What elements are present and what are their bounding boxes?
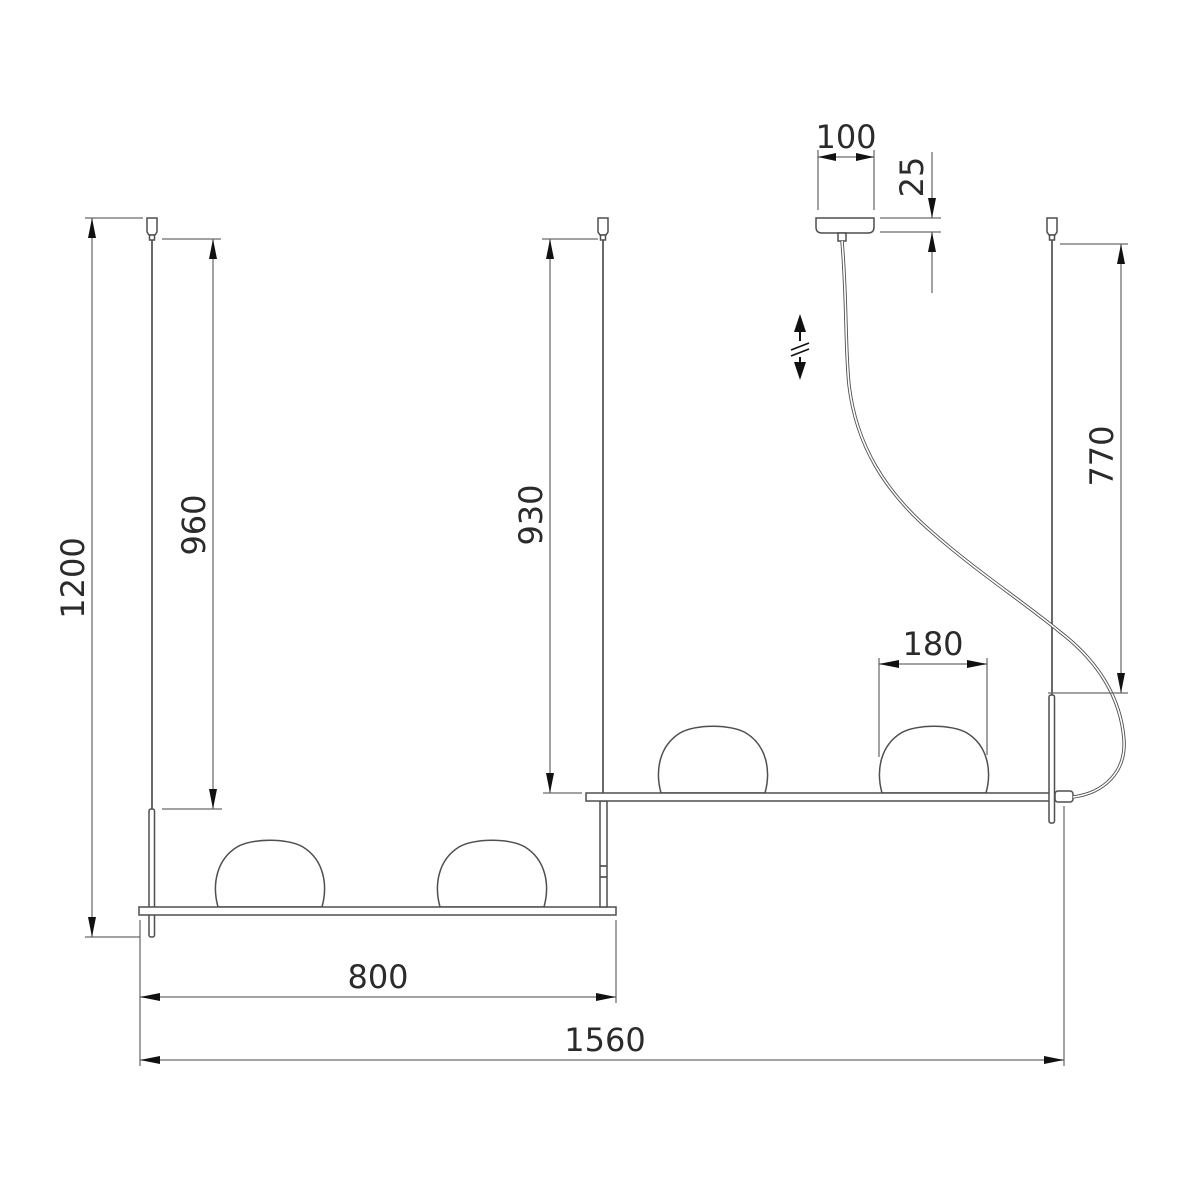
dim-label-800: 800 — [347, 958, 408, 996]
ceiling-canopy — [816, 218, 874, 233]
lamp-shade — [879, 726, 988, 793]
dim-label-1560: 1560 — [564, 1021, 645, 1059]
suspension-rod — [1049, 695, 1055, 823]
ceiling-grip-icon — [1047, 218, 1057, 240]
dimension-lower-bar-length: 800 — [140, 920, 616, 1066]
ceiling-grip-icon — [598, 218, 608, 240]
lower-bar-assembly — [139, 840, 616, 915]
upper-bar-assembly — [586, 726, 1073, 802]
lower-bar — [139, 907, 616, 915]
dim-label-25: 25 — [893, 157, 931, 198]
dim-label-1200: 1200 — [54, 537, 92, 618]
dim-label-930: 930 — [512, 484, 550, 545]
dimension-left-suspension-drop: 960 — [162, 239, 222, 809]
dim-label-180: 180 — [902, 625, 963, 663]
lamp-shade — [658, 726, 767, 793]
canopy-and-cable — [816, 218, 1124, 797]
cable-end-cap — [1055, 791, 1073, 802]
lamp-shade — [215, 840, 324, 907]
dim-label-770: 770 — [1083, 425, 1121, 486]
dimension-canopy-height: 25 — [880, 152, 941, 293]
dimension-middle-suspension-drop: 930 — [512, 239, 598, 793]
dim-label-100: 100 — [815, 118, 876, 156]
canopy-nub — [838, 233, 846, 241]
dimension-canopy-width: 100 — [815, 118, 876, 210]
dim-label-960: 960 — [175, 494, 213, 555]
right-suspension — [1047, 218, 1057, 823]
lamp-shade — [437, 840, 546, 907]
connector-rod — [600, 801, 607, 907]
suspension-rod — [149, 809, 155, 937]
drawing-canvas: 1200 960 930 770 100 — [0, 0, 1200, 1200]
ceiling-grip-icon — [147, 218, 157, 240]
upper-bar — [586, 793, 1064, 801]
dimension-overall-height: 1200 — [54, 218, 143, 937]
lamp-fixture — [139, 218, 1124, 937]
dimension-cable-suspension-drop: 770 — [1048, 244, 1128, 693]
middle-suspension — [598, 218, 608, 907]
pendant-lamp-dimension-drawing: 1200 960 930 770 100 — [0, 0, 1200, 1200]
power-cable — [842, 241, 1124, 797]
left-suspension — [147, 218, 157, 937]
power-cable-highlight — [842, 241, 1124, 797]
adjustable-height-icon — [791, 314, 809, 380]
